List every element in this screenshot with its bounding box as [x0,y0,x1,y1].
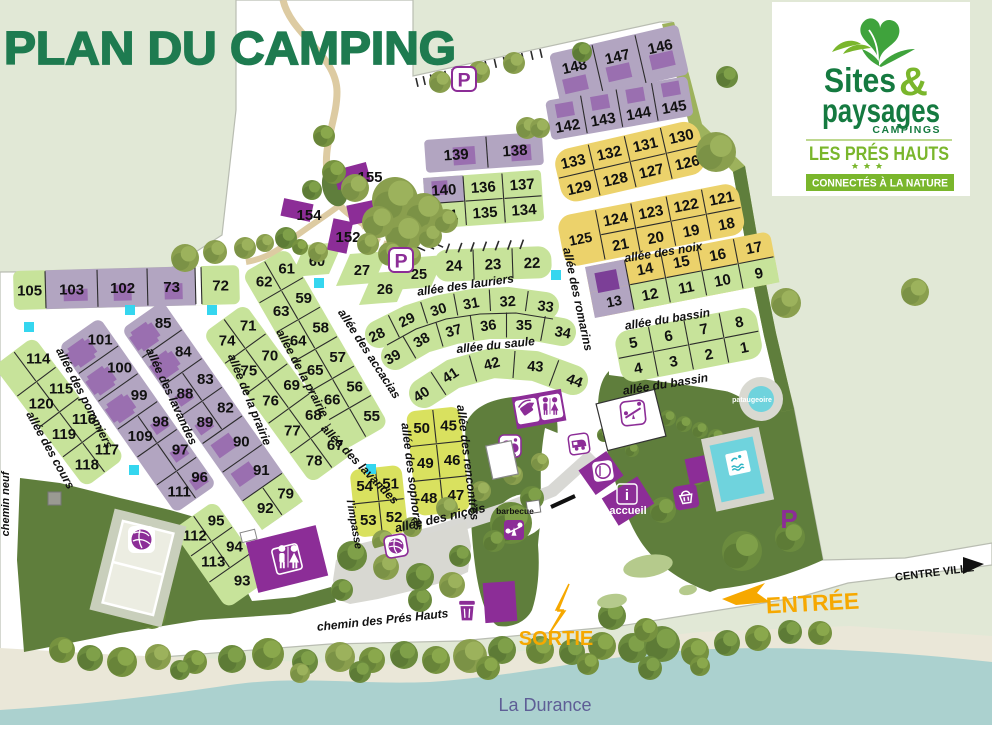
svg-text:59: 59 [295,290,312,307]
svg-text:26: 26 [377,282,393,298]
svg-text:17: 17 [744,238,764,258]
svg-text:84: 84 [175,344,192,361]
svg-text:113: 113 [201,554,225,571]
svg-text:35: 35 [516,318,532,334]
svg-text:La Durance: La Durance [498,695,591,715]
svg-text:10: 10 [713,271,733,291]
svg-text:22: 22 [523,255,540,273]
svg-text:46: 46 [444,452,461,469]
svg-text:138: 138 [502,142,528,161]
svg-text:56: 56 [346,379,363,396]
svg-text:55: 55 [363,408,380,425]
svg-text:70: 70 [262,347,279,364]
svg-text:71: 71 [240,317,257,334]
svg-text:134: 134 [511,201,538,220]
svg-text:P: P [457,70,470,92]
svg-text:101: 101 [88,331,113,348]
svg-text:112: 112 [183,527,207,544]
svg-text:45: 45 [440,417,457,434]
svg-text:49: 49 [417,455,434,472]
svg-text:accueil: accueil [609,505,646,517]
svg-text:CAMPINGS: CAMPINGS [872,124,941,136]
svg-text:P: P [780,504,797,534]
svg-text:103: 103 [59,281,84,298]
svg-text:19: 19 [681,221,701,241]
svg-text:P: P [394,251,407,273]
svg-text:53: 53 [360,512,377,529]
svg-text:90: 90 [233,434,250,451]
svg-text:27: 27 [354,263,370,279]
svg-text:36: 36 [479,317,497,335]
svg-text:76: 76 [262,393,279,410]
svg-text:114: 114 [26,350,51,367]
svg-text:72: 72 [212,278,229,295]
svg-text:118: 118 [75,456,99,473]
svg-text:97: 97 [172,441,189,458]
svg-text:74: 74 [219,333,236,350]
svg-text:73: 73 [163,279,180,296]
svg-text:99: 99 [131,387,148,404]
svg-text:pataugeoire: pataugeoire [732,397,772,404]
svg-text:92: 92 [257,500,274,517]
svg-text:23: 23 [484,256,501,274]
svg-text:18: 18 [717,215,737,235]
svg-text:i: i [625,487,629,504]
svg-text:82: 82 [217,400,234,417]
svg-text:95: 95 [208,512,225,529]
svg-text:137: 137 [509,176,535,195]
svg-text:79: 79 [277,486,294,503]
svg-text:16: 16 [708,245,728,265]
svg-text:98: 98 [152,414,169,431]
svg-text:69: 69 [283,377,300,394]
svg-text:102: 102 [110,280,135,297]
svg-text:chemin neuf: chemin neuf [0,470,12,536]
svg-text:13: 13 [605,292,624,311]
svg-text:62: 62 [256,274,273,291]
svg-text:ENTRÉE: ENTRÉE [765,587,860,619]
svg-text:91: 91 [253,462,270,479]
svg-text:24: 24 [445,257,463,275]
svg-text:100: 100 [107,359,132,376]
svg-text:CONNECTÉS À LA NATURE: CONNECTÉS À LA NATURE [812,177,948,190]
svg-text:61: 61 [278,261,295,278]
svg-text:154: 154 [296,207,322,224]
svg-text:105: 105 [17,283,42,300]
svg-text:LES PRÉS HAUTS: LES PRÉS HAUTS [809,143,949,165]
svg-text:11: 11 [677,278,696,298]
svg-text:96: 96 [191,469,208,486]
svg-text:109: 109 [128,428,153,445]
svg-text:139: 139 [443,146,469,165]
svg-text:152: 152 [335,229,360,246]
svg-text:58: 58 [312,320,329,337]
svg-text:43: 43 [527,359,544,376]
svg-text:111: 111 [168,484,191,501]
svg-text:135: 135 [472,204,498,223]
svg-text:33: 33 [536,298,554,316]
svg-text:SORTIE: SORTIE [519,628,593,650]
svg-text:83: 83 [197,371,214,388]
svg-text:57: 57 [329,349,346,366]
svg-text:78: 78 [306,452,323,469]
svg-text:85: 85 [155,315,172,332]
svg-text:119: 119 [52,426,76,443]
svg-text:32: 32 [499,294,516,311]
svg-text:barbecue: barbecue [496,506,534,516]
svg-text:12: 12 [640,285,660,305]
svg-text:136: 136 [470,178,496,197]
svg-text:89: 89 [197,414,214,431]
svg-text:PLAN DU CAMPING: PLAN DU CAMPING [4,22,456,74]
svg-text:94: 94 [226,539,243,556]
svg-text:63: 63 [273,303,290,320]
svg-text:31: 31 [462,295,481,314]
svg-text:77: 77 [284,423,301,440]
svg-text:34: 34 [553,324,572,343]
svg-text:93: 93 [234,572,251,589]
svg-text:50: 50 [413,420,430,437]
